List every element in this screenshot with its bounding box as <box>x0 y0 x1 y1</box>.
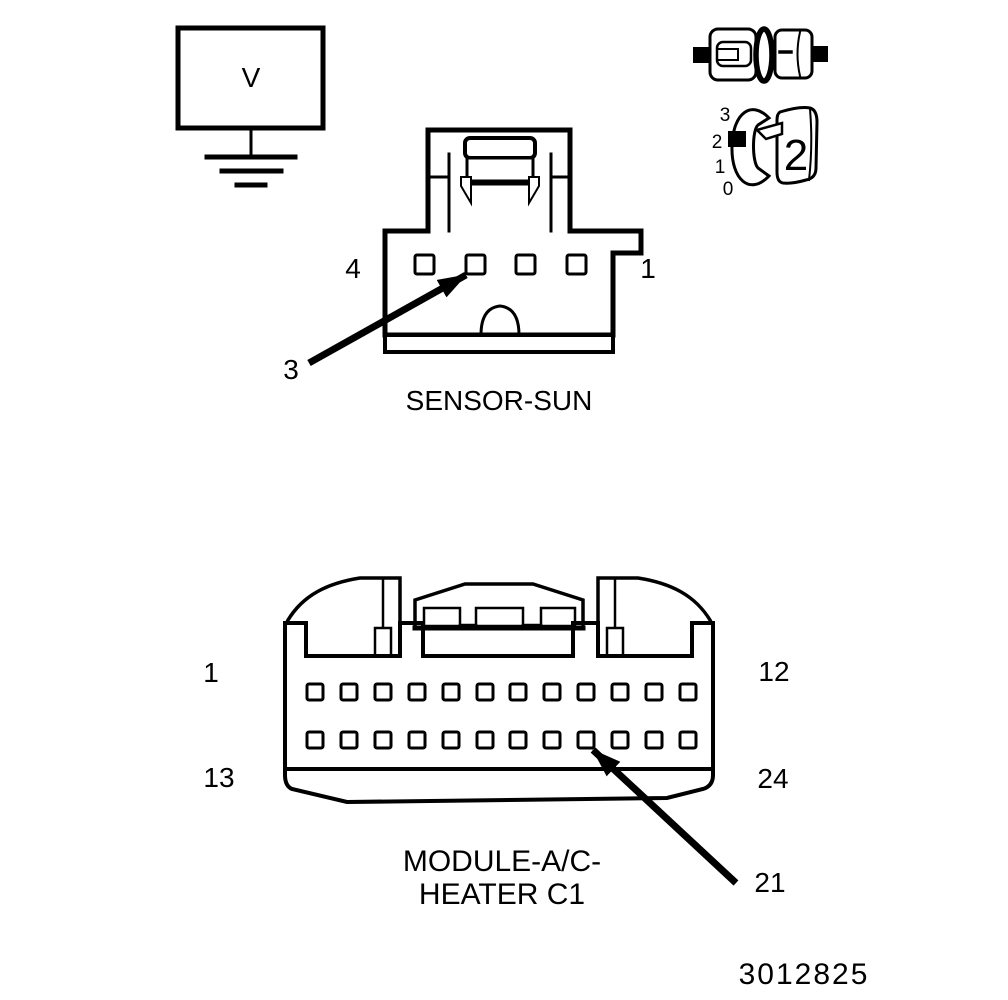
module-pin-grid <box>307 684 696 748</box>
male-terminal-body <box>775 30 812 78</box>
voltmeter-label: V <box>242 62 261 93</box>
sensor-index-dome <box>481 306 519 335</box>
module-callout-label: 21 <box>754 867 785 898</box>
pin-hole <box>612 732 628 748</box>
lock-hook-right <box>529 177 539 203</box>
module-ac-heater-connector: 1 12 13 24 21 MODULE-A/C- HEATER C1 <box>203 578 789 911</box>
module-caption-line1: MODULE-A/C- <box>403 845 601 878</box>
sensor-callout: 3 <box>283 275 466 385</box>
pin-hole <box>646 684 662 700</box>
terminal-connector-icon <box>693 29 828 81</box>
gauge-marker <box>728 131 746 147</box>
gauge-scale-1: 1 <box>715 157 726 178</box>
module-pin-label-bottom-left: 13 <box>203 762 234 793</box>
pin-hole <box>510 684 526 700</box>
wire-stub-left <box>693 47 711 63</box>
pin-hole <box>544 732 560 748</box>
pin-hole <box>612 684 628 700</box>
pin-hole <box>680 732 696 748</box>
pin-hole <box>646 732 662 748</box>
sensor-caption: SENSOR-SUN <box>406 385 593 416</box>
sensor-callout-label: 3 <box>283 354 299 385</box>
pin-hole <box>409 684 425 700</box>
pin-hole <box>680 684 696 700</box>
module-body <box>285 623 713 802</box>
pin-hole <box>375 732 391 748</box>
pin-hole <box>341 732 357 748</box>
module-pin-label-bottom-right: 24 <box>757 763 788 794</box>
gauge-scale-2: 2 <box>712 132 723 153</box>
lock-tab-base <box>467 158 533 181</box>
sensor-pin-label-right: 1 <box>640 253 656 284</box>
pin-hole <box>307 684 323 700</box>
pin-hole <box>415 255 434 274</box>
module-caption-line2: HEATER C1 <box>419 878 585 911</box>
pin-hole <box>341 684 357 700</box>
pin-hole <box>375 684 391 700</box>
ground-icon <box>207 157 295 185</box>
seal-ring <box>756 29 772 81</box>
pin-hole <box>477 732 493 748</box>
gauge-dial <box>732 110 769 185</box>
pin-hole <box>466 255 485 274</box>
lock-hook-left <box>461 177 471 203</box>
sensor-pin-grid <box>415 255 586 274</box>
wire-stub-right <box>811 46 828 62</box>
pin-hole <box>544 684 560 700</box>
part-number: 3012825 <box>739 958 870 991</box>
diagram-canvas: V 3 2 1 0 2 <box>0 0 1008 1000</box>
pin-hole <box>443 732 459 748</box>
gauge-scale-0: 0 <box>723 179 734 200</box>
pin-hole <box>578 732 594 748</box>
sensor-sun-connector: 4 1 3 SENSOR-SUN <box>283 130 656 416</box>
module-latch <box>415 584 583 628</box>
lock-tab-top <box>465 138 535 158</box>
gauge-position-icon: 3 2 1 0 2 <box>712 105 817 200</box>
module-pin-label-top-right: 12 <box>758 656 789 687</box>
sensor-body <box>385 231 641 335</box>
voltmeter-symbol: V <box>178 28 323 185</box>
pin-hole <box>578 684 594 700</box>
pin-hole <box>307 732 323 748</box>
gauge-value: 2 <box>784 131 808 180</box>
connector-diagram-page: V 3 2 1 0 2 <box>0 0 1008 1000</box>
pin-hole <box>516 255 535 274</box>
ear-right-tab <box>607 628 623 655</box>
pin-hole <box>409 732 425 748</box>
pin-hole <box>443 684 459 700</box>
pin-hole <box>477 684 493 700</box>
sensor-base-bar <box>385 335 613 352</box>
latch-outline <box>415 584 583 628</box>
pin-hole <box>567 255 586 274</box>
gauge-scale-3: 3 <box>720 105 731 126</box>
sensor-pin-label-left: 4 <box>345 253 361 284</box>
module-pin-label-top-left: 1 <box>203 657 219 688</box>
pin-hole <box>510 732 526 748</box>
ear-left-tab <box>375 628 391 655</box>
